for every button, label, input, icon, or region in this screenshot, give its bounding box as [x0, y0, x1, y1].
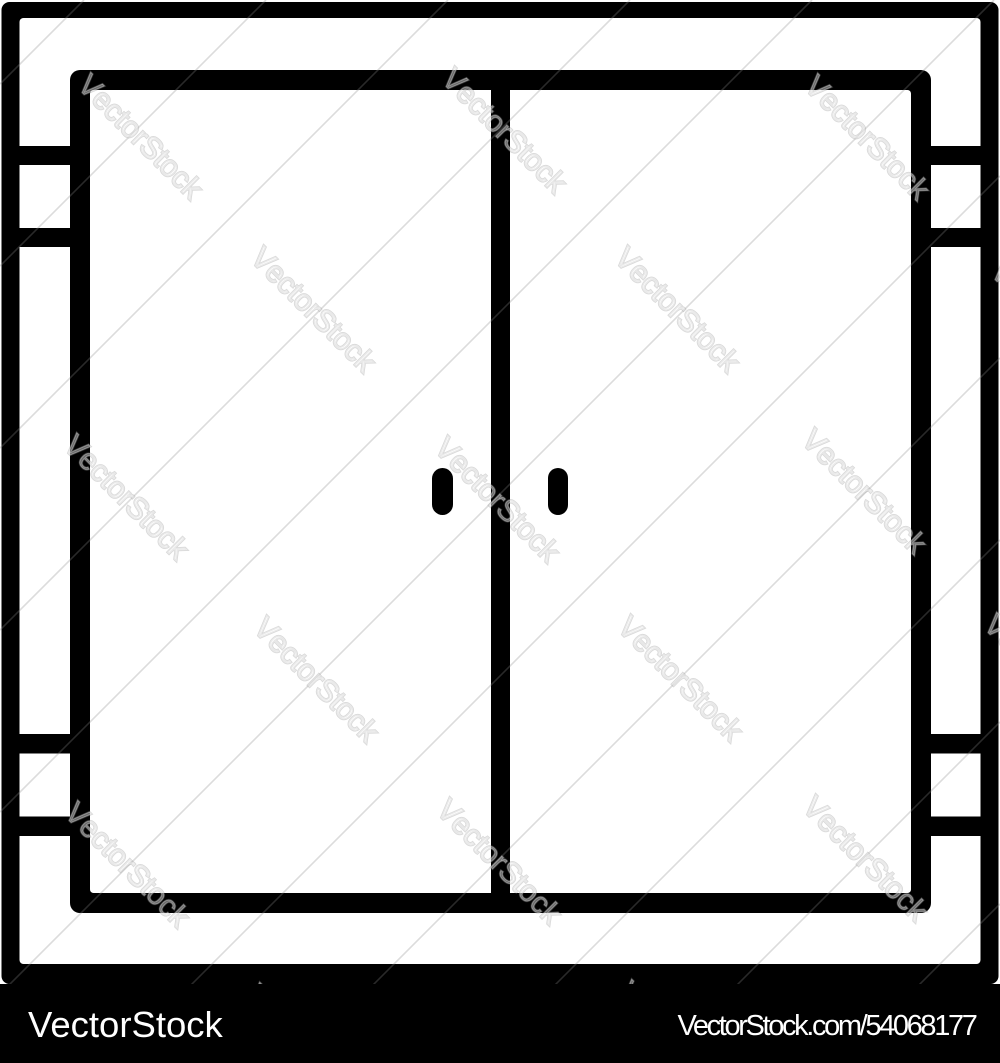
svg-text:VectorStock: VectorStock — [28, 1004, 224, 1045]
svg-text:VectorStock.com/54068177: VectorStock.com/54068177 — [677, 1010, 976, 1042]
